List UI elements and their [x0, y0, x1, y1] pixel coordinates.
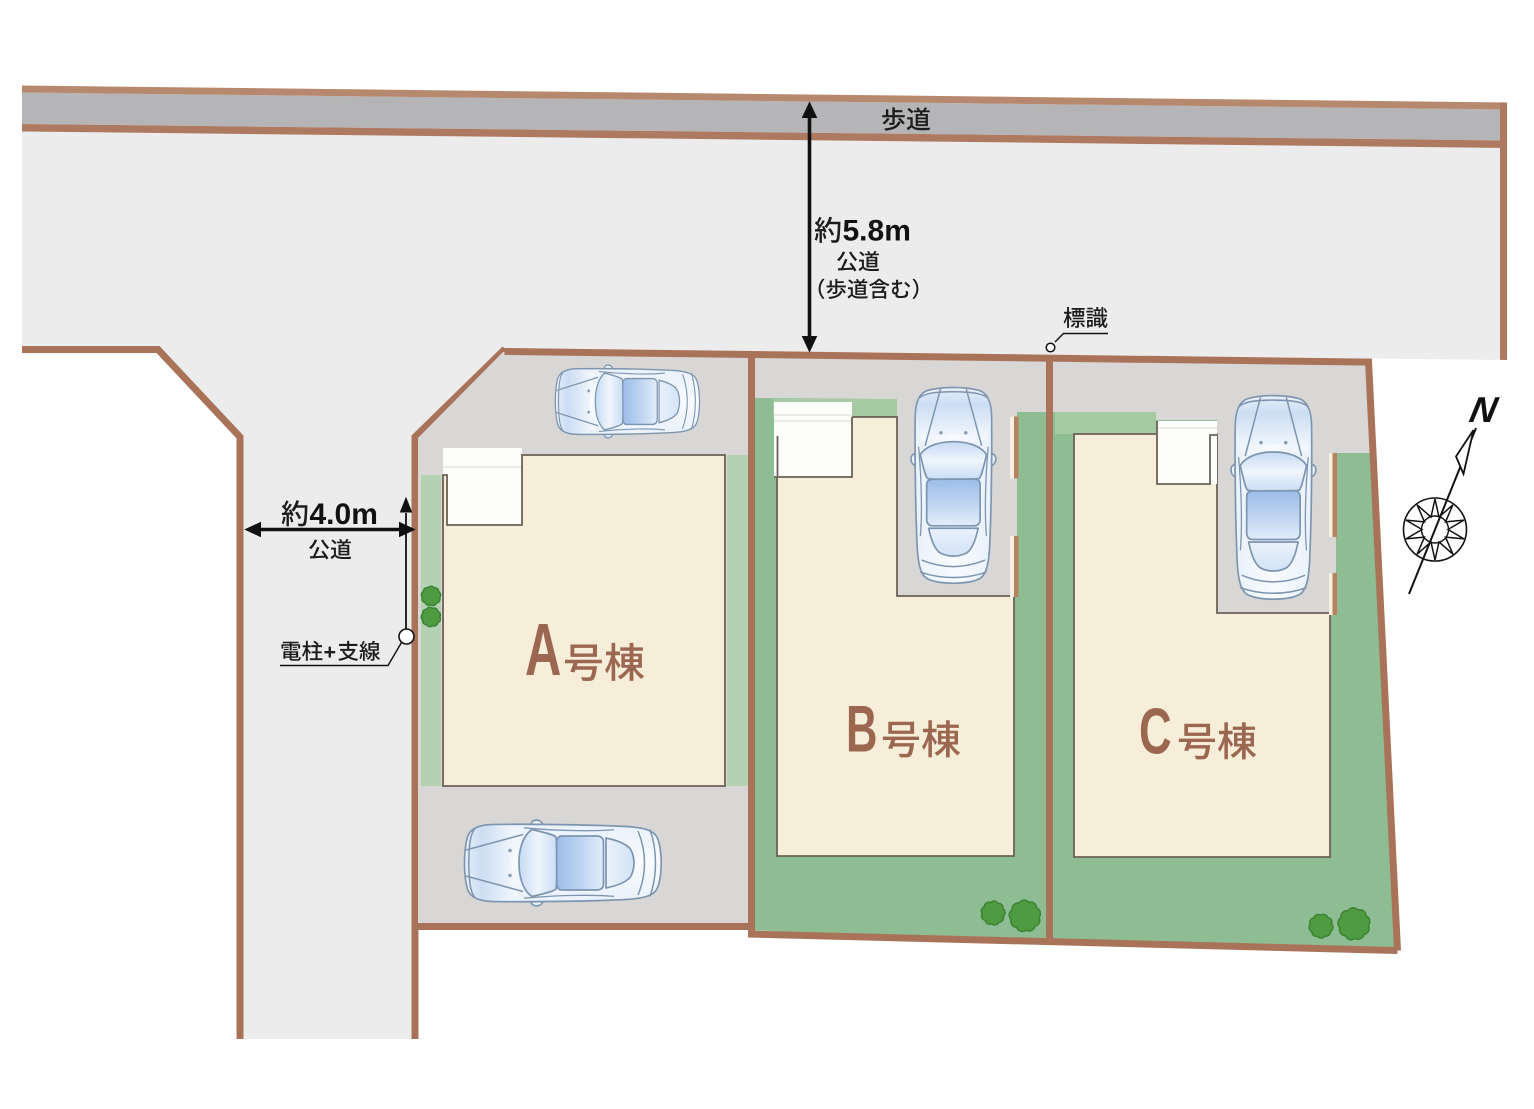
svg-text:A: A [525, 610, 561, 692]
svg-text:C: C [1139, 696, 1172, 768]
svg-text:4.0m: 4.0m [310, 498, 378, 531]
svg-text:5.8m: 5.8m [843, 215, 911, 248]
svg-text:B: B [846, 691, 877, 765]
svg-text:N: N [1466, 389, 1501, 430]
svg-text:+: + [324, 640, 337, 664]
